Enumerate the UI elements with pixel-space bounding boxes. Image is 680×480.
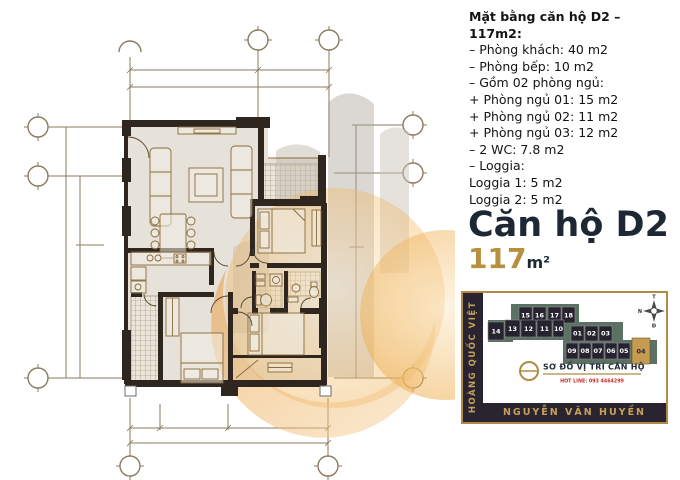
- unit-label-highlighted: 04: [636, 348, 646, 356]
- unit-label: 18: [564, 312, 574, 320]
- apartment-title-block: Căn hộ D2 117m²: [468, 206, 669, 277]
- info-line: + Phòng ngủ 01: 15 m2: [469, 92, 675, 109]
- info-line: – Gồm 02 phòng ngủ:: [469, 75, 675, 92]
- sofa-right: [231, 146, 252, 218]
- compass-top: T: [652, 295, 656, 301]
- area-unit: m²: [526, 253, 550, 272]
- location-map-box: 15 16 17 18 14 13 12 11 10 01 02 03 09 0…: [461, 291, 668, 424]
- map-legend: SƠ ĐỒ VỊ TRÍ CĂN HỘ HOT LINE: 093 446429…: [520, 360, 645, 385]
- grid-bubble: [248, 30, 268, 50]
- grid-bubble: [28, 117, 48, 137]
- grid-bubble: [28, 166, 48, 186]
- apartment-area: 117m²: [468, 245, 669, 277]
- unit-label: 13: [508, 325, 517, 333]
- unit-label: 02: [587, 330, 596, 338]
- apartment-name: Căn hộ D2: [468, 206, 669, 244]
- info-line: – Loggia:: [469, 158, 675, 175]
- unit-label: 09: [567, 347, 577, 355]
- info-line: + Phòng ngủ 02: 11 m2: [469, 109, 675, 126]
- unit-label: 12: [524, 325, 533, 333]
- apartment-info-list: Mặt bằng căn hộ D2 – 117m2: – Phòng khác…: [469, 9, 675, 208]
- grid-bubble: [120, 456, 140, 476]
- grid-bubble: [319, 30, 339, 50]
- unit-label: 16: [535, 312, 545, 320]
- street-strip-bottom: NGUYỄN VĂN HUYỀN: [483, 403, 666, 422]
- wardrobe-bedroom3: [166, 298, 179, 336]
- grid-bubble: [28, 368, 48, 388]
- hotline-text: HOT LINE: 093 4464299: [560, 379, 624, 385]
- unit-label: 01: [573, 330, 583, 338]
- compass-bottom: Đ: [652, 324, 656, 330]
- unit-label: 15: [521, 312, 531, 320]
- unit-label: 06: [606, 347, 616, 355]
- compass-left: N: [638, 309, 642, 315]
- info-heading: Mặt bằng căn hộ D2 – 117m2:: [469, 9, 675, 42]
- area-value: 117: [468, 242, 526, 275]
- grid-bubble: [318, 456, 338, 476]
- unit-label: 03: [601, 330, 610, 338]
- unit-label: 07: [593, 347, 602, 355]
- bed-bedroom3: [181, 333, 223, 383]
- info-line: – Phòng bếp: 10 m2: [469, 59, 675, 76]
- floor-plan: [0, 0, 455, 480]
- coffee-table: [189, 168, 223, 202]
- unit-label: 05: [619, 347, 629, 355]
- street-name-bottom: NGUYỄN VĂN HUYỀN: [503, 407, 646, 418]
- info-line: – 2 WC: 7.8 m2: [469, 142, 675, 159]
- bed-bedroom1: [258, 209, 305, 253]
- bed-bedroom2: [248, 313, 304, 355]
- unit-label: 10: [554, 325, 564, 333]
- wardrobe-bedroom1: [312, 210, 321, 246]
- info-line: Loggia 1: 5 m2: [469, 175, 675, 192]
- location-minimap: 15 16 17 18 14 13 12 11 10 01 02 03 09 0…: [463, 293, 666, 403]
- unit-label: 08: [580, 347, 590, 355]
- loggia2-hatch: [131, 296, 159, 382]
- tv-console: [178, 127, 236, 134]
- unit-label: 14: [491, 328, 501, 336]
- street-strip-left: HOÀNG QUỐC VIỆT: [463, 293, 483, 422]
- street-name-left: HOÀNG QUỐC VIỆT: [468, 301, 478, 413]
- grid-bubble-arc: [119, 41, 141, 52]
- unit-label: 17: [550, 312, 559, 320]
- unit-label: 11: [540, 325, 550, 333]
- info-line: + Phòng ngủ 03: 12 m2: [469, 125, 675, 142]
- compass-icon: T B N Đ: [638, 295, 666, 330]
- floorplan-brochure-page: { "info": { "heading": "Mặt bằng căn hộ …: [0, 0, 680, 480]
- info-line: – Phòng khách: 40 m2: [469, 42, 675, 59]
